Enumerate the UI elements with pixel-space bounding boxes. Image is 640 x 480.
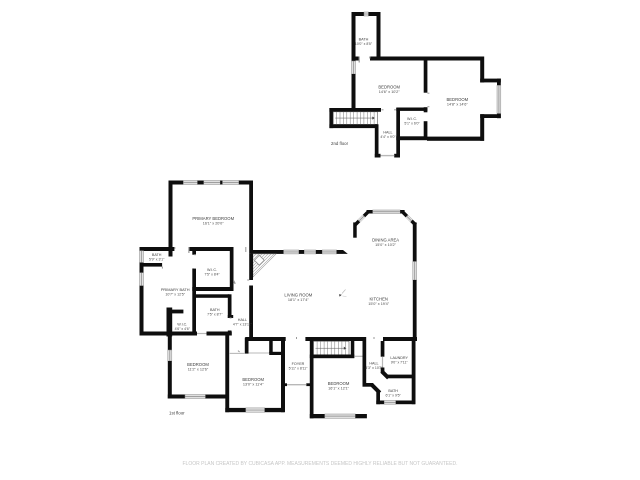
svg-text:16'1" x 20'0": 16'1" x 20'0"	[203, 221, 224, 225]
svg-text:W.I.C.: W.I.C.	[207, 268, 217, 272]
svg-text:BEDROOM: BEDROOM	[446, 97, 468, 102]
svg-text:15'0" x 10'2": 15'0" x 10'2"	[375, 243, 396, 247]
svg-text:9'0" x 7'11": 9'0" x 7'11"	[391, 361, 409, 365]
svg-text:BEDROOM: BEDROOM	[378, 85, 400, 90]
svg-text:11'2" x 12'6": 11'2" x 12'6"	[188, 368, 209, 372]
svg-text:5'1" x 6'0": 5'1" x 6'0"	[404, 122, 420, 126]
svg-text:6'1" x 9'5": 6'1" x 9'5"	[386, 394, 402, 398]
svg-text:BATH: BATH	[152, 253, 162, 257]
svg-text:1st floor: 1st floor	[169, 411, 185, 416]
svg-text:FOYER: FOYER	[292, 362, 305, 366]
svg-text:KITCHEN: KITCHEN	[370, 296, 388, 301]
svg-text:2nd floor: 2nd floor	[331, 141, 349, 146]
svg-text:LIVING ROOM: LIVING ROOM	[284, 293, 312, 298]
svg-text:7'5" x 8'4": 7'5" x 8'4"	[204, 273, 220, 277]
svg-text:13'0" x 11'4": 13'0" x 11'4"	[243, 383, 264, 387]
svg-text:14'6" x 10'2": 14'6" x 10'2"	[379, 90, 400, 94]
svg-text:10'7" x 12'5": 10'7" x 12'5"	[165, 293, 185, 297]
svg-text:4'4" x 9'0": 4'4" x 9'0"	[380, 135, 396, 139]
svg-text:4'7" x 13'11": 4'7" x 13'11"	[233, 322, 253, 326]
svg-text:BATH: BATH	[210, 308, 220, 312]
svg-text:FLOOR PLAN CREATED BY CUBICASA: FLOOR PLAN CREATED BY CUBICASA APP. MEAS…	[183, 461, 458, 467]
svg-text:PRIMARY BATH: PRIMARY BATH	[161, 287, 190, 292]
svg-text:5'9" x 3'1": 5'9" x 3'1"	[149, 258, 165, 262]
svg-text:W.I.C.: W.I.C.	[407, 117, 417, 121]
svg-text:W.I.C.: W.I.C.	[177, 322, 187, 326]
svg-text:16'1" x 12'1": 16'1" x 12'1"	[328, 387, 349, 391]
svg-text:4'6" x 4'6": 4'6" x 4'6"	[175, 327, 191, 331]
svg-text:14'8" x 14'6": 14'8" x 14'6"	[447, 102, 468, 106]
svg-text:HALL: HALL	[238, 318, 247, 322]
svg-text:15'0" x 19'4": 15'0" x 19'4"	[368, 302, 389, 306]
svg-text:LAUNDRY: LAUNDRY	[390, 356, 408, 360]
svg-text:4'3" x 10'3": 4'3" x 10'3"	[365, 366, 383, 370]
svg-text:BEDROOM: BEDROOM	[328, 381, 350, 386]
svg-text:BATH: BATH	[359, 38, 369, 42]
svg-text:PRIMARY BEDROOM: PRIMARY BEDROOM	[192, 216, 234, 221]
svg-text:DINING AREA: DINING AREA	[372, 237, 399, 242]
svg-text:7'5" x 8'7": 7'5" x 8'7"	[207, 312, 223, 316]
svg-text:10'0" x 8'5": 10'0" x 8'5"	[355, 42, 373, 46]
svg-text:18'1" x 17'4": 18'1" x 17'4"	[288, 298, 309, 302]
svg-text:BEDROOM: BEDROOM	[187, 362, 209, 367]
svg-text:5'11" x 8'11": 5'11" x 8'11"	[289, 367, 308, 371]
svg-text:BATH: BATH	[388, 389, 398, 393]
svg-text:HALL: HALL	[369, 361, 378, 365]
svg-text:BEDROOM: BEDROOM	[242, 377, 264, 382]
svg-text:HALL: HALL	[383, 130, 392, 134]
